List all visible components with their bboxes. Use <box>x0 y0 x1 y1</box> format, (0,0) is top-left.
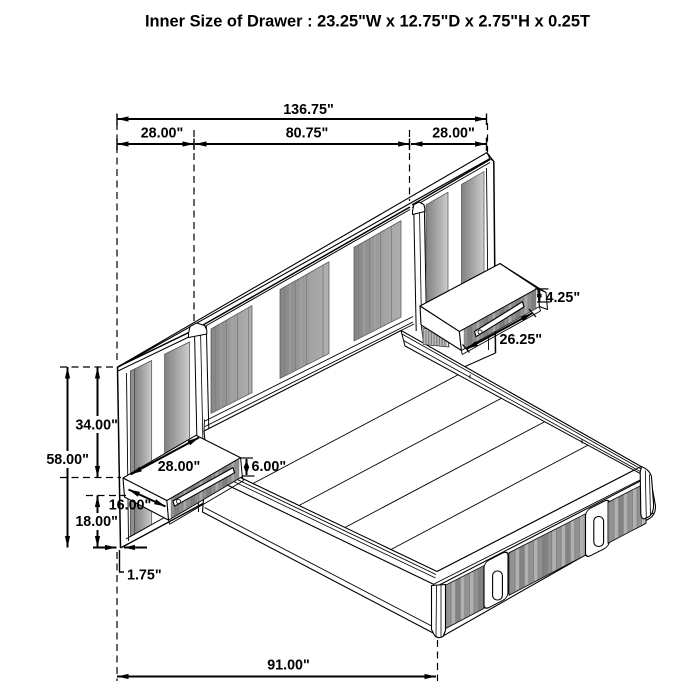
svg-text:28.00": 28.00" <box>432 126 475 142</box>
svg-text:91.00": 91.00" <box>267 658 310 674</box>
svg-text:34.00": 34.00" <box>75 418 118 434</box>
svg-text:26.25": 26.25" <box>500 332 543 348</box>
svg-text:80.75": 80.75" <box>286 126 329 142</box>
svg-text:28.00": 28.00" <box>158 459 201 475</box>
svg-text:28.00": 28.00" <box>141 126 184 142</box>
svg-text:6.00": 6.00" <box>252 459 287 475</box>
svg-text:58.00": 58.00" <box>46 452 89 468</box>
svg-text:16.00": 16.00" <box>109 497 152 513</box>
svg-text:1.75": 1.75" <box>127 568 162 584</box>
svg-text:18.00": 18.00" <box>75 514 118 530</box>
svg-text:Inner Size of Drawer : 23.25"W: Inner Size of Drawer : 23.25"W x 12.75"D… <box>145 13 590 31</box>
svg-text:136.75": 136.75" <box>283 102 334 118</box>
svg-text:4.25": 4.25" <box>546 290 581 306</box>
